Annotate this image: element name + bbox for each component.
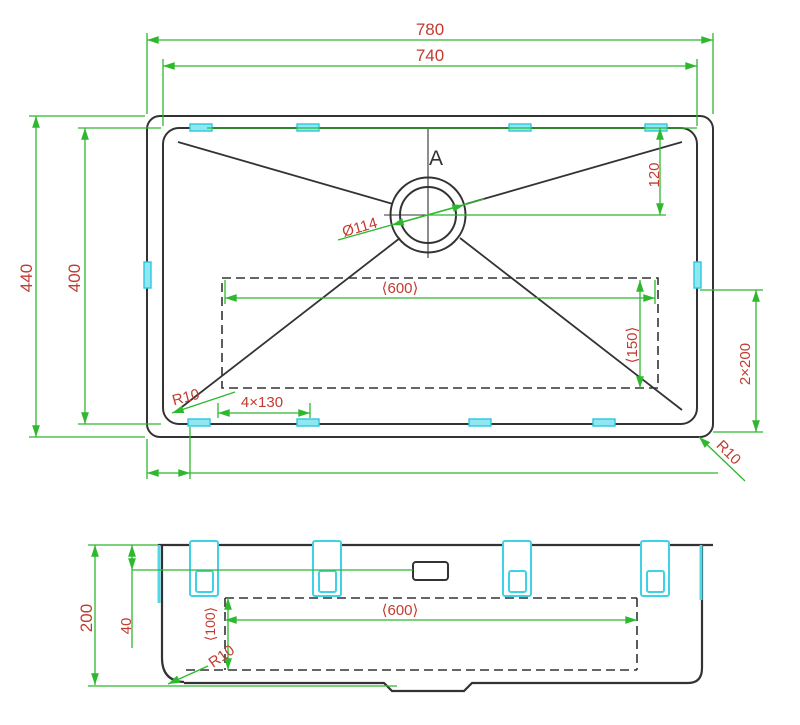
dim-400-label: 400	[65, 264, 84, 292]
dim-4x130-label: 4×130	[241, 394, 283, 411]
clip-mark	[188, 419, 210, 426]
pad-height-label: ⟨150⟩	[624, 327, 641, 364]
radius-leader-front	[168, 666, 208, 684]
radius-label-bottom-right: R10	[713, 437, 744, 468]
clip-mark	[297, 419, 319, 426]
left-profile	[162, 545, 184, 682]
dim-40-label: 40	[118, 618, 135, 635]
clip-foot	[319, 571, 336, 592]
mounting-clips-top-view	[144, 124, 701, 426]
dim-200	[88, 545, 397, 686]
arrow-line	[392, 215, 428, 225]
cad-sheet: 780 740 440 400 120 Ø114 A ⟨600⟩ ⟨150⟩ 2…	[0, 0, 800, 725]
bottom-pad-hidden-outline	[222, 278, 658, 388]
clip-foot	[196, 571, 213, 592]
dim-200-label: 200	[77, 604, 96, 632]
crease-bottom-left	[178, 238, 400, 410]
front-view: 200 40 ⟨100⟩ ⟨600⟩ R10	[77, 541, 713, 691]
bottom-right-profile	[184, 545, 702, 691]
bowl-crease-lines	[178, 142, 682, 410]
dim-120-label: 120	[646, 162, 663, 187]
clip-mark	[469, 419, 491, 426]
crease-top-left	[178, 142, 393, 204]
drain-diameter-label: Ø114	[340, 215, 379, 241]
pad-width-label-top: ⟨600⟩	[382, 280, 419, 297]
dim-740-label: 740	[416, 46, 444, 65]
clip-mark	[144, 262, 151, 288]
dim-40	[132, 545, 413, 648]
drain-opening-mark	[413, 562, 448, 580]
pad-depth-label: ⟨100⟩	[202, 607, 218, 641]
clip-mark	[593, 419, 615, 426]
dim-2x200-label: 2×200	[737, 343, 754, 385]
dim-pad-width-top	[225, 280, 655, 304]
top-view: 780 740 440 400 120 Ø114 A ⟨600⟩ ⟨150⟩ 2…	[17, 20, 763, 481]
section-label: A	[429, 147, 443, 170]
mounting-clips-front-view	[159, 541, 701, 603]
dim-440	[29, 116, 145, 437]
pad-width-label-front: ⟨600⟩	[382, 602, 419, 619]
dim-780-label: 780	[416, 20, 444, 39]
crease-bottom-right	[460, 238, 682, 410]
clip-foot	[509, 571, 526, 592]
dim-440-label: 440	[17, 264, 36, 292]
radius-label-bottom-left: R10	[170, 386, 201, 410]
radius-label-front: R10	[206, 642, 238, 672]
arrow-line	[428, 205, 464, 215]
clip-mark	[694, 262, 701, 288]
inner-bowl-outline	[163, 128, 697, 424]
dim-edge-chain	[147, 427, 718, 479]
clip-foot	[647, 571, 664, 592]
sink-technical-drawing: 780 740 440 400 120 Ø114 A ⟨600⟩ ⟨150⟩ 2…	[0, 0, 800, 725]
